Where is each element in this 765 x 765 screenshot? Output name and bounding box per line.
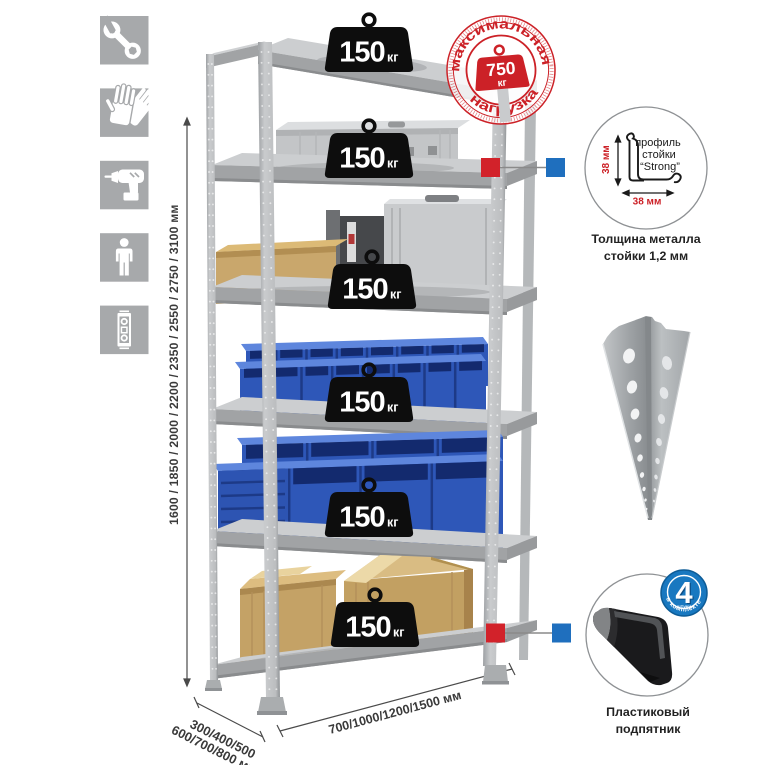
svg-text:кг: кг (393, 626, 404, 640)
svg-text:Толщина металла: Толщина металла (591, 232, 700, 246)
svg-text:150: 150 (339, 37, 384, 69)
svg-text:150: 150 (342, 274, 387, 306)
svg-text:кг: кг (387, 157, 398, 171)
svg-text:150: 150 (339, 143, 384, 175)
svg-text:кг: кг (387, 401, 398, 415)
svg-text:кг: кг (387, 516, 398, 530)
svg-text:150: 150 (345, 612, 390, 644)
svg-text:стойки 1,2 мм: стойки 1,2 мм (604, 249, 688, 263)
svg-text:кг: кг (497, 78, 507, 90)
svg-text:“Strong”: “Strong” (640, 161, 680, 173)
svg-text:150: 150 (339, 502, 384, 534)
svg-text:подпятник: подпятник (616, 722, 682, 736)
svg-text:750: 750 (485, 58, 516, 80)
svg-text:38 мм: 38 мм (633, 197, 662, 208)
svg-text:профиль: профиль (635, 137, 681, 149)
svg-text:кг: кг (387, 51, 398, 65)
svg-text:1600 / 1850 / 2000 / 2200 / 23: 1600 / 1850 / 2000 / 2200 / 2350 / 2550 … (167, 204, 181, 525)
svg-text:150: 150 (339, 387, 384, 419)
svg-text:кг: кг (390, 288, 401, 302)
svg-text:стойки: стойки (642, 149, 676, 161)
svg-text:38 мм: 38 мм (601, 145, 612, 174)
svg-text:Пластиковый: Пластиковый (606, 705, 690, 719)
